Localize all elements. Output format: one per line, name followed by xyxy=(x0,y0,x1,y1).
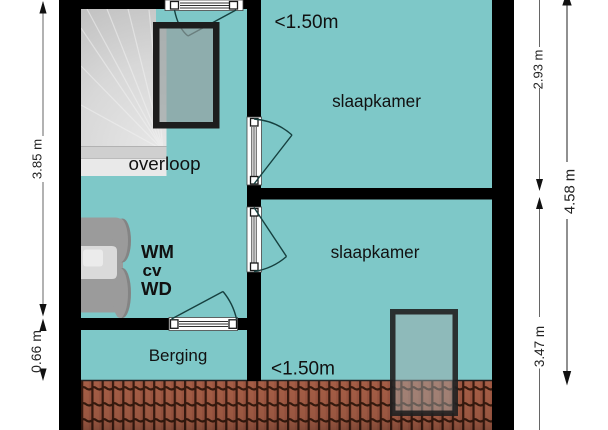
svg-text:WD: WD xyxy=(141,278,172,299)
svg-text:3.47 m: 3.47 m xyxy=(532,326,547,367)
svg-text:4.58 m: 4.58 m xyxy=(562,169,578,214)
svg-text:3.85 m: 3.85 m xyxy=(30,139,45,179)
svg-text:0.66 m: 0.66 m xyxy=(28,330,44,373)
svg-text:overloop: overloop xyxy=(128,153,200,174)
svg-text:WM: WM xyxy=(141,241,174,262)
svg-text:Berging: Berging xyxy=(149,346,208,365)
svg-text:slaapkamer: slaapkamer xyxy=(331,242,420,262)
svg-text:<1.50m: <1.50m xyxy=(271,358,335,379)
svg-text:slaapkamer: slaapkamer xyxy=(332,91,421,111)
svg-text:<1.50m: <1.50m xyxy=(275,12,339,33)
svg-text:2.93 m: 2.93 m xyxy=(531,50,546,90)
